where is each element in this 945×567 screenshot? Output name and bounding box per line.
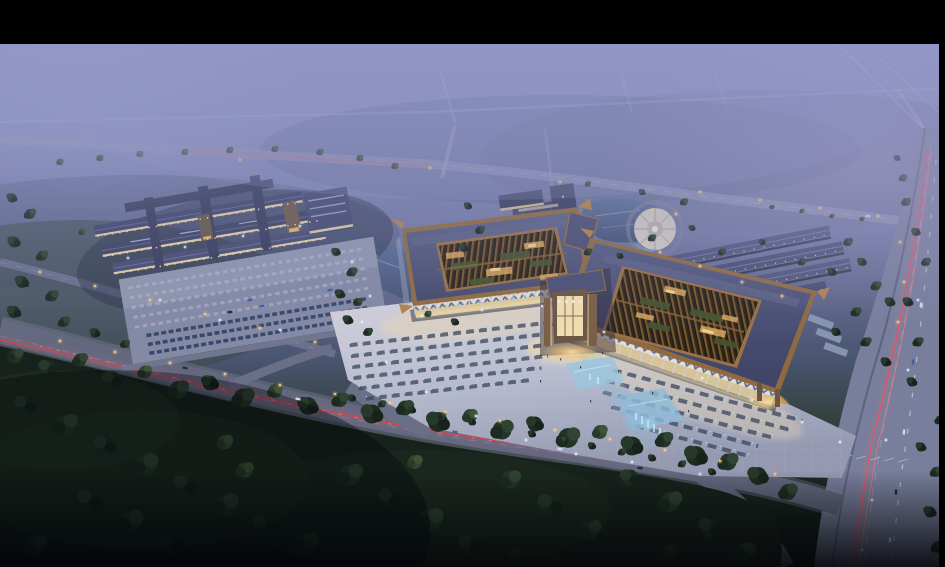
street-lamp xyxy=(799,419,805,425)
street-lamp xyxy=(112,349,119,356)
aerial-rendering xyxy=(0,0,945,567)
street-lamp xyxy=(423,389,429,395)
street-lamp xyxy=(167,360,174,367)
street-lamp xyxy=(383,359,389,365)
street-lamp xyxy=(473,413,479,419)
street-lamp xyxy=(649,351,655,357)
street-lamp xyxy=(607,436,614,443)
street-lamp xyxy=(573,451,579,457)
street-lamp xyxy=(332,391,339,398)
letterbox-top xyxy=(0,0,945,44)
street-lamp xyxy=(552,427,559,434)
car xyxy=(903,429,906,434)
street-lamp xyxy=(387,400,394,407)
street-lamp xyxy=(749,397,755,403)
letterbox-right xyxy=(939,0,945,567)
street-lamp xyxy=(883,437,889,443)
street-lamp xyxy=(222,371,229,378)
street-lamp xyxy=(523,437,529,443)
rendering-stage xyxy=(0,0,945,567)
street-lamp xyxy=(717,458,724,465)
street-lamp xyxy=(277,382,284,389)
street-lamp xyxy=(497,418,504,425)
street-lamp xyxy=(662,447,669,454)
street-lamp xyxy=(837,439,843,445)
atmosphere xyxy=(0,0,945,567)
street-lamp xyxy=(699,375,705,381)
street-lamp xyxy=(442,409,449,416)
street-lamp xyxy=(905,367,911,373)
gate-entry-glow xyxy=(542,343,602,361)
street-lamp xyxy=(629,459,635,465)
